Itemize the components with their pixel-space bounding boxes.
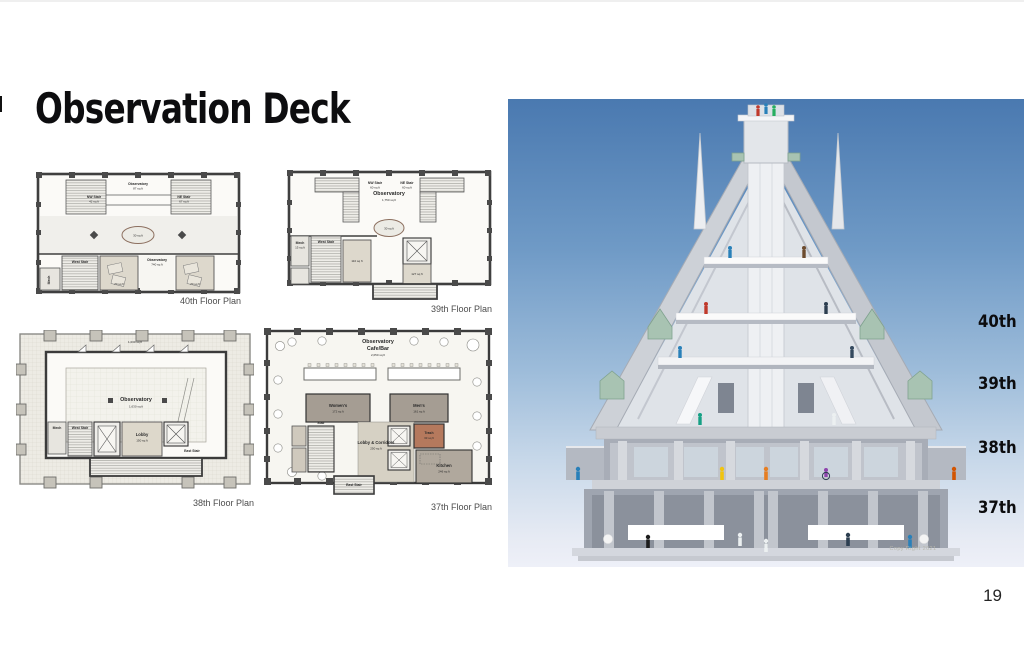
room-area: 150 sq ft <box>136 439 148 443</box>
room-area: 2,050 sq ft <box>371 353 385 357</box>
room-area: 15 sq ft <box>295 246 305 250</box>
room-label: East Stair <box>184 449 200 453</box>
room-label: Lobby <box>136 432 149 437</box>
top-divider <box>0 0 1024 2</box>
copyright-watermark: Copy Right 2021 <box>838 546 988 552</box>
building-section-rendering <box>508 99 1024 567</box>
room-area: 60 sq ft <box>370 186 380 190</box>
floor-plan-39th-drawing: NW Stair 60 sq ft Observatory 1,750 sq f… <box>287 170 492 302</box>
room-area: 42 sq ft <box>89 200 99 204</box>
room-area: 70 sq ft <box>190 282 200 286</box>
room-label: Lobby & Corridors <box>358 440 396 445</box>
room-label: West Stair <box>318 240 335 244</box>
slab-39-38 <box>596 427 936 439</box>
floor-label-37th: 37th <box>978 498 1017 516</box>
room-label: Observatory <box>362 339 394 345</box>
building-section-drawing <box>508 99 1024 567</box>
floor-plan-37th-drawing: Observatory Cafe/Bar 2,050 sq ft Women's… <box>264 328 492 500</box>
floor-plan-caption-39th: 39th Floor Plan <box>287 304 492 314</box>
room-area: 740 sq ft <box>151 263 163 267</box>
room-label: West Stair <box>72 260 89 264</box>
floor-plan-39th: NW Stair 60 sq ft Observatory 1,750 sq f… <box>287 170 492 314</box>
room-area: 60 sq ft <box>402 186 412 190</box>
room-label: Men's <box>413 403 425 408</box>
room-label: Kitchen <box>436 463 452 468</box>
slab-38-37 <box>592 480 940 489</box>
room-area: 110 sq ft <box>351 259 362 263</box>
room-area: 33 sq ft <box>424 436 434 440</box>
room-area: 30 sq ft <box>384 227 394 231</box>
room-label: Observatory <box>373 191 405 197</box>
room-label: Cafe/Bar <box>367 346 390 352</box>
room-area: 1,750 sq ft <box>382 198 396 202</box>
room-label: Mech <box>53 426 62 430</box>
page-title: Observation Deck <box>35 84 350 133</box>
room-label: Mech <box>296 241 305 245</box>
room-label: West Stair <box>72 426 89 430</box>
room-label: Observatory <box>120 397 152 403</box>
base-course <box>578 556 954 561</box>
left-edge-mark <box>0 96 2 112</box>
room-area: 67 sq ft <box>179 200 189 204</box>
room-area: 87 sq ft <box>133 187 143 191</box>
floor-plan-40th: Observatory 87 sq ft NW Stair 42 sq ft N… <box>36 172 241 306</box>
room-area: 172 sq ft <box>332 410 344 414</box>
room-area: 70 sq ft <box>114 282 124 286</box>
room-area: 127 sq ft <box>411 272 423 276</box>
page-number: 19 <box>972 586 1002 606</box>
room-area: 250 sq ft <box>370 447 382 451</box>
room-area: 246 sq ft <box>438 470 450 474</box>
floor-plan-38th-drawing: 1,030 sq ft Observatory 1,630 sq ft Mech… <box>16 330 254 496</box>
room-area: 161 sq ft <box>413 410 425 414</box>
floor-label-39th: 39th <box>978 374 1017 392</box>
room-label: NE Stair <box>400 181 414 185</box>
floor-plan-caption-38th: 38th Floor Plan <box>16 498 254 508</box>
room-label: Observatory <box>147 258 167 262</box>
room-label: NE Stair <box>177 195 191 199</box>
room-label: Trash <box>424 431 433 435</box>
room-area: 1,630 sq ft <box>129 405 143 409</box>
room-label: NW Stair <box>87 195 102 199</box>
room-label: NW Stair <box>368 181 383 185</box>
floor-label-38th: 38th <box>978 438 1017 456</box>
floor-plan-40th-drawing: Observatory 87 sq ft NW Stair 42 sq ft N… <box>36 172 241 294</box>
room-area: 30 sq ft <box>133 234 143 238</box>
floor-label-40th: 40th <box>978 312 1017 330</box>
floor-plan-caption-40th: 40th Floor Plan <box>36 296 241 306</box>
floor-plan-38th: 1,030 sq ft Observatory 1,630 sq ft Mech… <box>16 330 254 508</box>
room-label: East Stair <box>346 483 362 487</box>
room-label: Mech <box>47 276 51 285</box>
floor-plan-37th: Observatory Cafe/Bar 2,050 sq ft Women's… <box>264 328 492 512</box>
room-label: Stair <box>317 421 325 425</box>
room-label: Women's <box>329 403 348 408</box>
room-label: Observatory <box>128 182 148 186</box>
room-area: 1,030 sq ft <box>128 340 142 344</box>
floor-plan-caption-37th: 37th Floor Plan <box>264 502 492 512</box>
